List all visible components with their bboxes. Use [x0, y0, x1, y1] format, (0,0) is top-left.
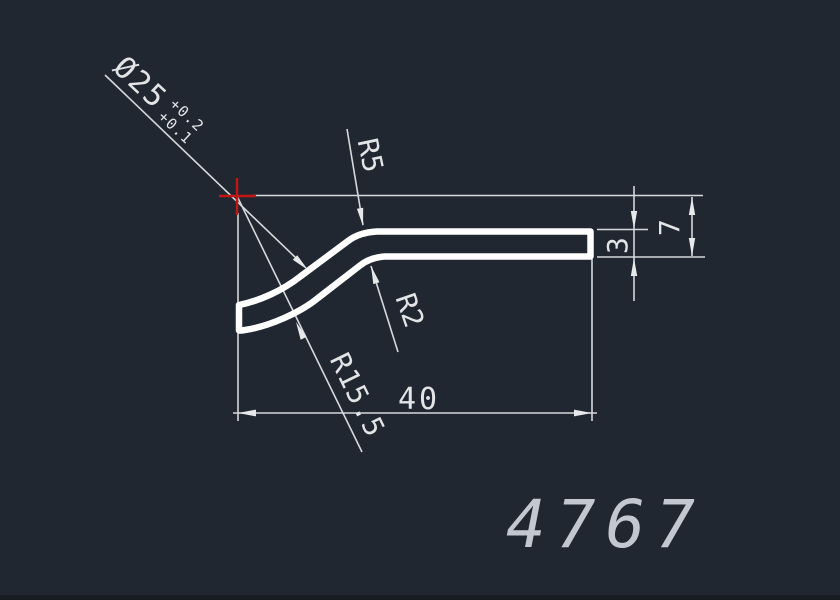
- outer-radius-arrowhead: [357, 208, 363, 226]
- bottom-edge-strip: [0, 595, 840, 600]
- length-arrowhead-right: [574, 410, 592, 417]
- height-arrowhead-bottom: [689, 238, 695, 256]
- drawing-number: 4767: [506, 492, 705, 558]
- thickness-dimension-label: 3: [604, 237, 632, 254]
- height-arrowhead-top: [689, 197, 695, 215]
- height-dimension-label: 7: [656, 219, 684, 236]
- thickness-arrowhead-top: [631, 211, 637, 229]
- diameter-arrowhead: [293, 255, 308, 270]
- length-dimension-label: 40: [398, 385, 440, 415]
- bend-radius-arrowhead: [296, 322, 307, 340]
- inner-radius-arrowhead: [371, 266, 380, 284]
- outer-radius-label: R5: [353, 136, 387, 175]
- cad-viewport[interactable]: Ø25 +0.2 +0.1 R5 R2 R15.5 40 3 7 4767: [0, 0, 840, 600]
- length-arrowhead-left: [238, 410, 256, 417]
- thickness-arrowhead-bottom: [631, 258, 637, 276]
